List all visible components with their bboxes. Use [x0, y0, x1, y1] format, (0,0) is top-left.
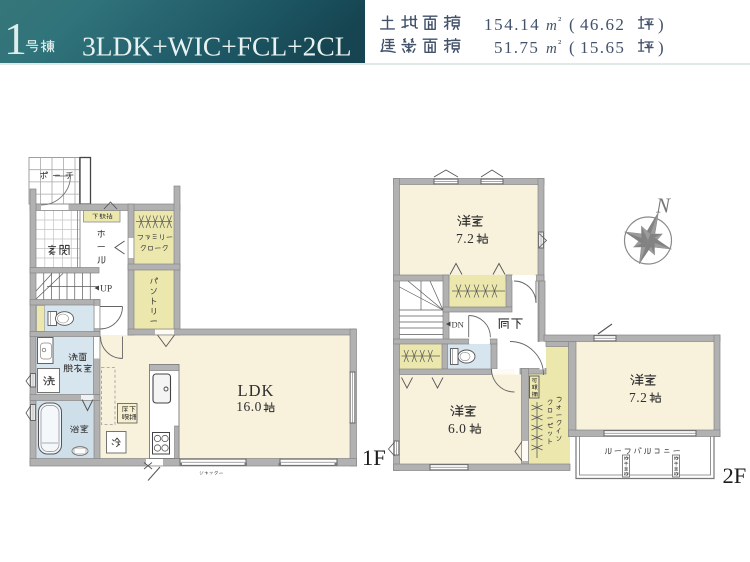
- svg-text:51.75: 51.75: [494, 38, 539, 57]
- svg-text:m: m: [546, 18, 557, 34]
- svg-text:): ): [658, 38, 664, 57]
- svg-text:N: N: [655, 194, 671, 218]
- svg-text:6.0: 6.0: [448, 421, 466, 436]
- svg-text:): ): [658, 15, 664, 34]
- svg-text:2F: 2F: [723, 463, 747, 488]
- svg-text:3LDK+WIC+FCL+2CL: 3LDK+WIC+FCL+2CL: [82, 31, 352, 62]
- svg-text:154.14: 154.14: [484, 15, 540, 34]
- svg-text:LDK: LDK: [238, 381, 275, 400]
- svg-text:16.0: 16.0: [236, 399, 262, 414]
- svg-text:7.2: 7.2: [629, 390, 647, 405]
- svg-text:(: (: [569, 38, 575, 57]
- svg-text:UP: UP: [100, 285, 112, 295]
- svg-text:DN: DN: [452, 320, 464, 330]
- svg-text:15.65: 15.65: [580, 38, 625, 57]
- svg-text:7.2: 7.2: [456, 231, 474, 246]
- svg-text:1F: 1F: [362, 445, 386, 470]
- svg-text:46.62: 46.62: [580, 15, 625, 34]
- svg-text:m: m: [546, 41, 557, 57]
- svg-text:1: 1: [4, 13, 27, 64]
- svg-text:(: (: [569, 15, 575, 34]
